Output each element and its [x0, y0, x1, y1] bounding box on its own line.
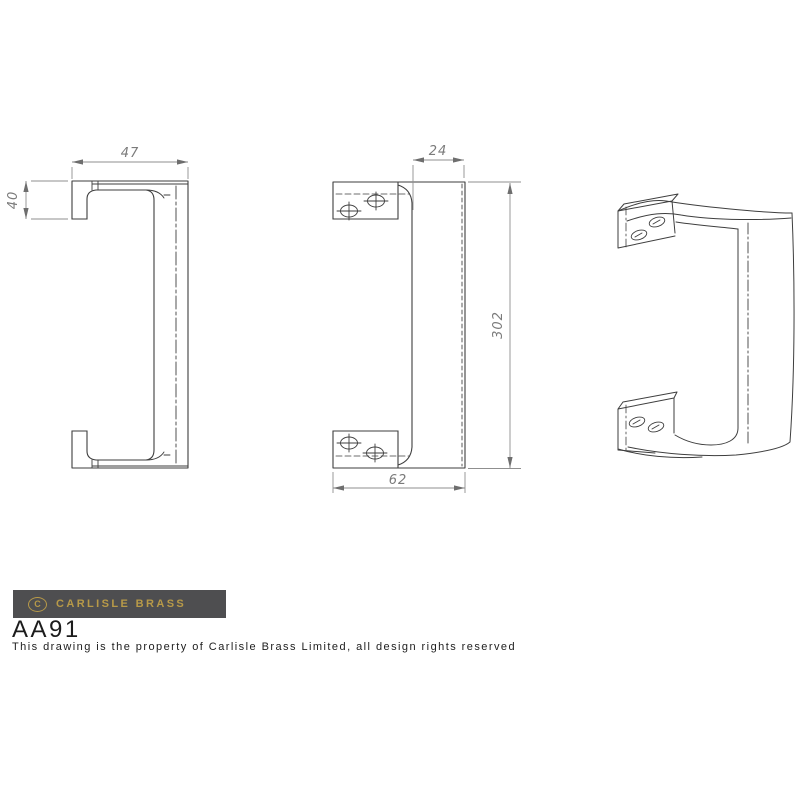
dim-47-label: 47: [121, 146, 140, 161]
dimension-62: 62: [333, 472, 465, 493]
dim-62-label: 62: [389, 473, 408, 488]
brand-name: CARLISLE BRASS: [56, 598, 186, 610]
screw-icon: [363, 444, 387, 462]
dimension-24: 24: [413, 144, 464, 210]
drawing-sheet: 47 40 24 302 62 C CARLISLE BRASS AA91 Th…: [0, 0, 800, 800]
brand-logo-bar: C CARLISLE BRASS: [13, 590, 226, 618]
screw-hole-icon: [628, 415, 665, 434]
side-view-inner-edges: [92, 181, 188, 468]
dim-302-label: 302: [491, 311, 506, 339]
perspective-bottom-block: [618, 392, 677, 453]
dimension-40: 40: [6, 181, 68, 219]
screw-hole-icon: [630, 215, 666, 242]
technical-drawing: 47 40 24 302 62: [0, 0, 800, 800]
side-view: [72, 181, 188, 468]
side-view-outline: [72, 181, 188, 468]
perspective-view: [618, 194, 794, 458]
front-view-hidden-lines: [336, 194, 409, 456]
front-view-outline: [333, 182, 465, 468]
screw-icon: [337, 434, 361, 452]
copyright-notice: This drawing is the property of Carlisle…: [12, 641, 516, 653]
dimension-47: 47: [72, 146, 188, 179]
carlisle-logo-icon: C: [28, 597, 47, 612]
dim-40-label: 40: [6, 191, 21, 210]
perspective-top-arm: [618, 200, 792, 229]
dim-24-label: 24: [429, 144, 448, 159]
screw-icon: [337, 202, 361, 220]
product-code: AA91: [12, 616, 81, 644]
dimension-302: 302: [468, 182, 521, 469]
screw-icon: [364, 192, 388, 210]
front-view: [333, 182, 465, 468]
